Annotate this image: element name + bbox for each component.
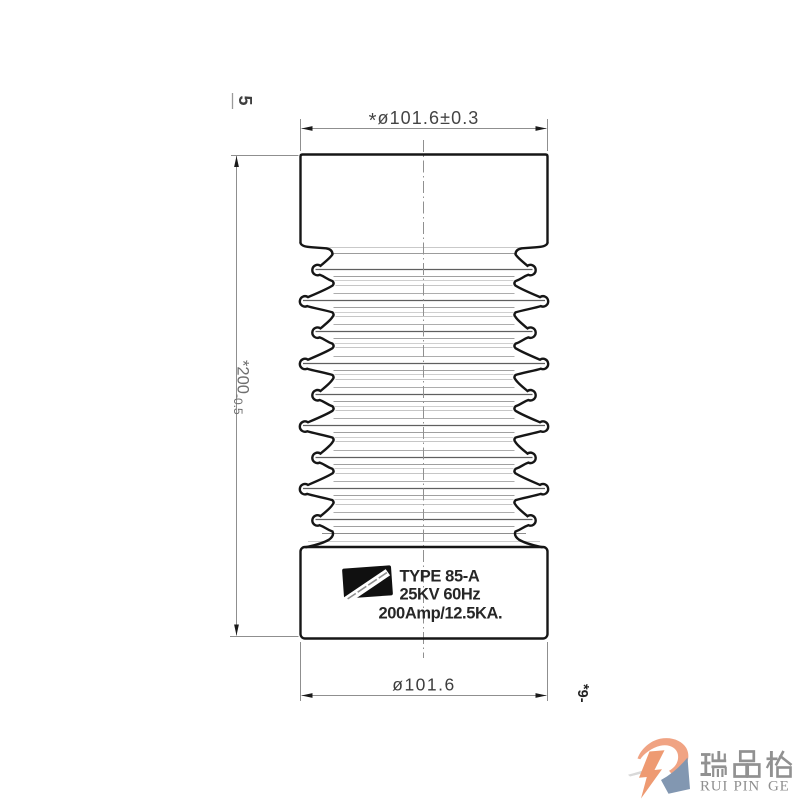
svg-text:25KV 60Hz: 25KV 60Hz	[400, 586, 481, 604]
svg-text:*9-: *9-	[574, 684, 591, 703]
svg-text:GE: GE	[768, 779, 790, 795]
svg-text:ø101.6: ø101.6	[392, 675, 455, 695]
svg-text:TYPE 85-A: TYPE 85-A	[400, 568, 480, 586]
svg-text:5: 5	[235, 96, 255, 106]
svg-text:200Amp/12.5KA.: 200Amp/12.5KA.	[379, 605, 503, 623]
svg-text:RUI: RUI	[700, 779, 728, 795]
svg-text:PIN: PIN	[734, 779, 761, 795]
